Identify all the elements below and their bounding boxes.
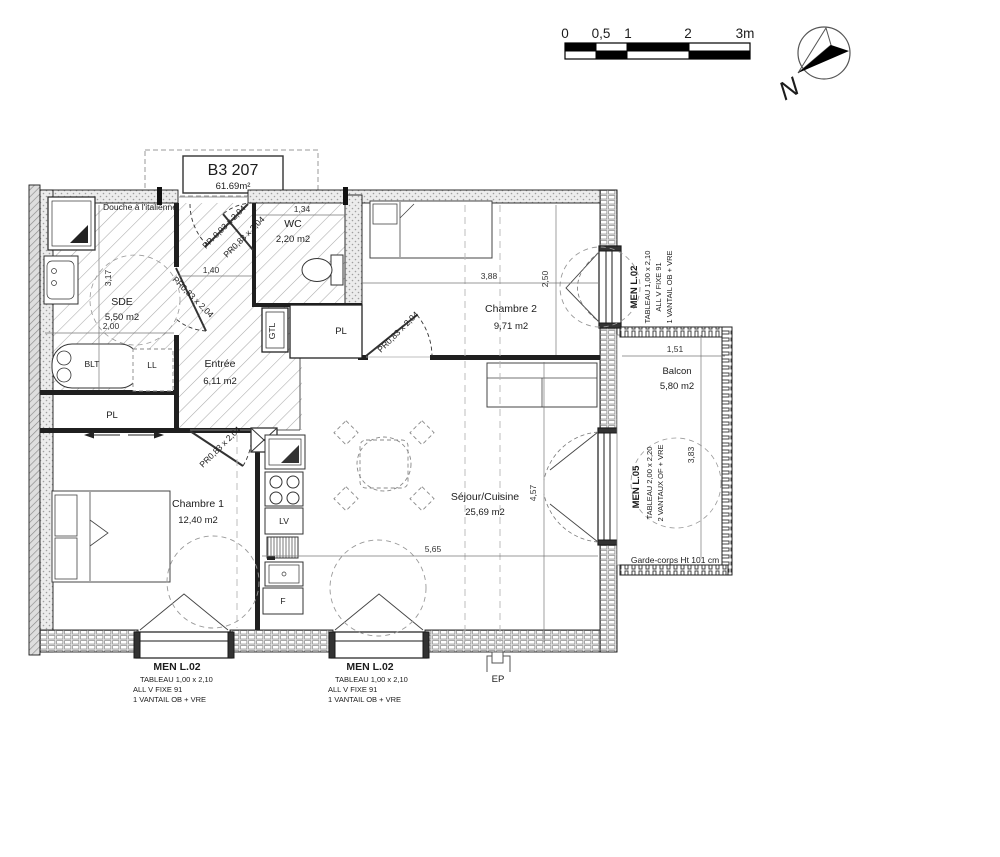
- balcony: Garde-corps Ht 101 cm: [617, 327, 732, 575]
- title-box: B3 207 61.69m²: [145, 150, 318, 196]
- dim-4-57: 4,57: [528, 484, 538, 501]
- floor-plan-drawing: B3 207 61.69m² 0 0,5 1 2 3m N: [0, 0, 1000, 857]
- dim-1-34: 1,34: [294, 204, 311, 214]
- label-blt: BLT: [85, 359, 100, 369]
- north-compass: N: [773, 27, 850, 106]
- scale-3m: 3m: [736, 26, 755, 41]
- label-ep: EP: [492, 674, 505, 685]
- tag-men-l05: MEN L.05: [631, 465, 642, 508]
- label-douche: Douche à l'italienne: [103, 202, 177, 212]
- dim-2-50: 2,50: [540, 270, 550, 287]
- tag-men-l02-br-l2: ALL V FIXE 91: [328, 685, 377, 694]
- unit-number: B3 207: [208, 162, 259, 179]
- floor-plan-page: B3 207 61.69m² 0 0,5 1 2 3m N: [0, 0, 1000, 857]
- tag-men-l02-right-l3: 1 VANTAIL OB + VRE: [665, 250, 674, 323]
- tag-men-l02-right-l2: ALL V FIXE 91: [654, 262, 663, 311]
- tag-men-l05-l1: TABLEAU 2,00 x 2,20: [645, 447, 654, 520]
- tag-men-l02-br-l3: 1 VANTAIL OB + VRE: [328, 695, 401, 704]
- dim-2-00: 2,00: [103, 321, 120, 331]
- tag-men-l02-br-l1: TABLEAU 1,00 x 2,10: [335, 675, 408, 684]
- unit-area: 61.69m²: [216, 181, 251, 192]
- tag-men-l02-right: MEN L.02: [629, 266, 640, 309]
- label-balcon-area: 5,80 m2: [660, 381, 694, 392]
- tag-men-l02-bl: MEN L.02: [153, 661, 200, 673]
- tag-men-l02-bl-l2: ALL V FIXE 91: [133, 685, 182, 694]
- label-chambre2: Chambre 2: [485, 303, 537, 315]
- tag-men-l02-br: MEN L.02: [346, 661, 393, 673]
- garde-corps-note: Garde-corps Ht 101 cm: [631, 555, 719, 565]
- label-entree: Entrée: [205, 358, 236, 370]
- label-gtl: GTL: [267, 322, 277, 339]
- label-chambre2-area: 9,71 m2: [494, 321, 528, 332]
- dim-1-40: 1,40: [203, 265, 220, 275]
- dim-3-17: 3,17: [103, 269, 113, 286]
- tag-men-l02-bl-l3: 1 VANTAIL OB + VRE: [133, 695, 206, 704]
- tag-men-l02-bl-l1: TABLEAU 1,00 x 2,10: [140, 675, 213, 684]
- tag-door-pr-ch2: PR0,83 x 2,04: [375, 309, 420, 354]
- north-label: N: [773, 71, 804, 106]
- label-wc-area: 2,20 m2: [276, 234, 310, 245]
- tag-men-l05-l2: 2 VANTAUX OF + VRE: [656, 444, 665, 521]
- scale-05: 0,5: [592, 26, 611, 41]
- label-entree-area: 6,11 m2: [203, 376, 237, 387]
- ep-downpipe: [487, 652, 510, 672]
- tag-men-l02-right-l1: TABLEAU 1,00 x 2,10: [643, 251, 652, 324]
- dim-5-65: 5,65: [425, 544, 442, 554]
- dim-3-83: 3,83: [686, 446, 696, 463]
- label-lv: LV: [279, 516, 289, 526]
- label-chambre1-area: 12,40 m2: [178, 515, 218, 526]
- scale-2: 2: [684, 26, 692, 41]
- label-wc: WC: [284, 218, 302, 230]
- label-sde: SDE: [111, 296, 133, 308]
- label-pl-chambre1: PL: [106, 410, 118, 421]
- scale-bar: 0 0,5 1 2 3m: [561, 26, 754, 59]
- label-f: F: [280, 596, 285, 606]
- label-chambre1: Chambre 1: [172, 498, 224, 510]
- label-balcon: Balcon: [662, 366, 691, 377]
- dim-1-51: 1,51: [667, 344, 684, 354]
- scale-0: 0: [561, 26, 569, 41]
- label-sejour: Séjour/Cuisine: [451, 491, 519, 503]
- label-sejour-area: 25,69 m2: [465, 507, 505, 518]
- scale-1: 1: [624, 26, 632, 41]
- label-ll: LL: [147, 360, 157, 370]
- dim-3-88: 3,88: [481, 271, 498, 281]
- label-pl-entree: PL: [335, 326, 347, 337]
